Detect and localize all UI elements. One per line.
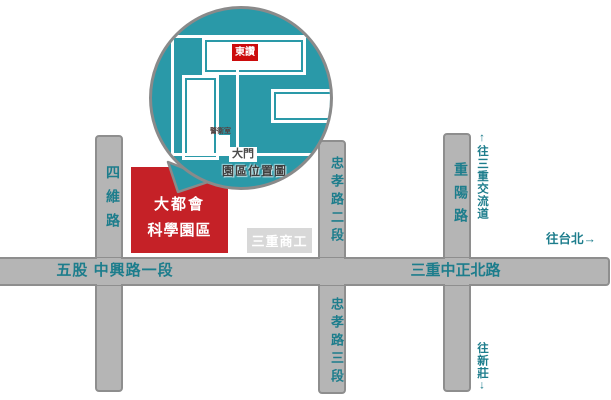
guard-room-label: 警衛室 xyxy=(210,126,231,136)
direction-to-interchange: ↑往三重交流道 xyxy=(474,132,490,220)
intersection-zhongxiao xyxy=(320,258,344,285)
science-park-name-line2: 科學園區 xyxy=(131,219,228,240)
inset-boundary-top xyxy=(158,35,318,38)
inset-building-left xyxy=(185,78,216,157)
road-label-wugu-zhongxing: 五股 中興路一段 xyxy=(0,257,230,286)
road-label-chongyang: 重陽路 xyxy=(443,152,471,240)
inset-caption: 園區位置圖 xyxy=(222,162,287,179)
road-label-sanchong-zhongzheng: 三重中正北路 xyxy=(398,257,513,286)
park-location-inset: 東讚 警衛室 大門 園區位置圖 xyxy=(149,6,333,190)
direction-to-taipei: 往台北→ xyxy=(546,228,596,247)
guard-house xyxy=(216,135,230,153)
road-label-zhongxiao-3: 忠孝路三段 xyxy=(318,294,346,390)
inset-boundary-left xyxy=(171,35,174,157)
road-label-zhongxiao-2: 忠孝路二段 xyxy=(318,150,346,252)
direction-to-xinzhuang: 往新莊↓ xyxy=(474,342,490,393)
school-sanchong-shanggong: 三重商工 xyxy=(247,228,312,253)
inset-driveway xyxy=(236,70,239,154)
inset-building-right xyxy=(274,92,333,120)
map-canvas: 四維路 五股 中興路一段 忠孝路二段 忠孝路三段 三重中正北路 重陽路 ↑往三重… xyxy=(0,0,611,400)
road-label-siwei: 四維路 xyxy=(95,156,123,246)
main-gate-label: 大門 xyxy=(229,147,257,162)
company-badge: 東讚 xyxy=(232,44,258,61)
